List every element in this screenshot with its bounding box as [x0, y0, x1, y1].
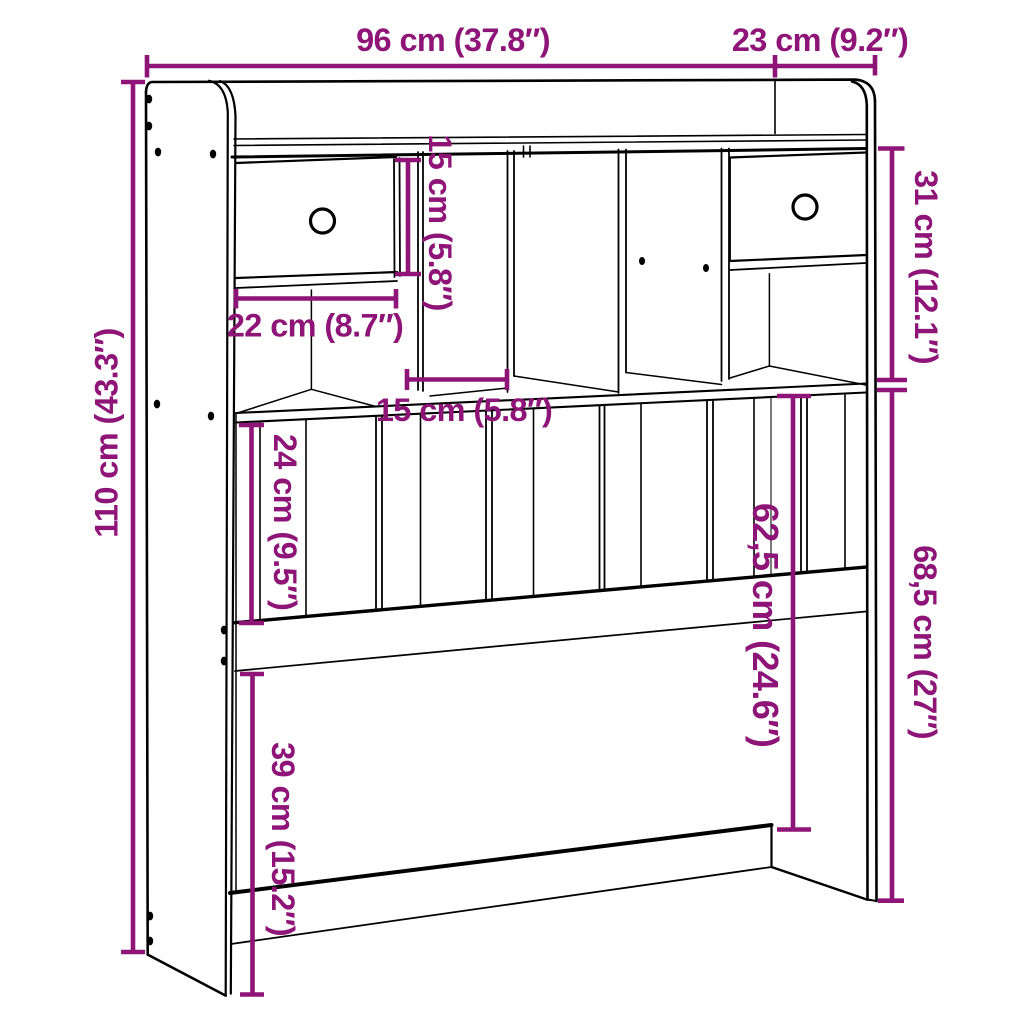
svg-text:96 cm (37.8″): 96 cm (37.8″) — [356, 22, 550, 58]
svg-text:24 cm (9.5″): 24 cm (9.5″) — [267, 434, 303, 610]
svg-text:15 cm (5.8″): 15 cm (5.8″) — [422, 134, 458, 310]
svg-text:39 cm (15.2″): 39 cm (15.2″) — [265, 742, 301, 936]
svg-text:22 cm (8.7″): 22 cm (8.7″) — [227, 308, 403, 344]
svg-text:15 cm (5.8″): 15 cm (5.8″) — [376, 392, 552, 428]
svg-text:110 cm (43.3″): 110 cm (43.3″) — [89, 328, 125, 538]
svg-text:68,5 cm (27″): 68,5 cm (27″) — [907, 545, 943, 739]
svg-text:31 cm (12.1″): 31 cm (12.1″) — [908, 170, 944, 364]
svg-text:62,5 cm (24.6″): 62,5 cm (24.6″) — [745, 503, 786, 747]
svg-text:23 cm (9.2″): 23 cm (9.2″) — [732, 22, 908, 58]
